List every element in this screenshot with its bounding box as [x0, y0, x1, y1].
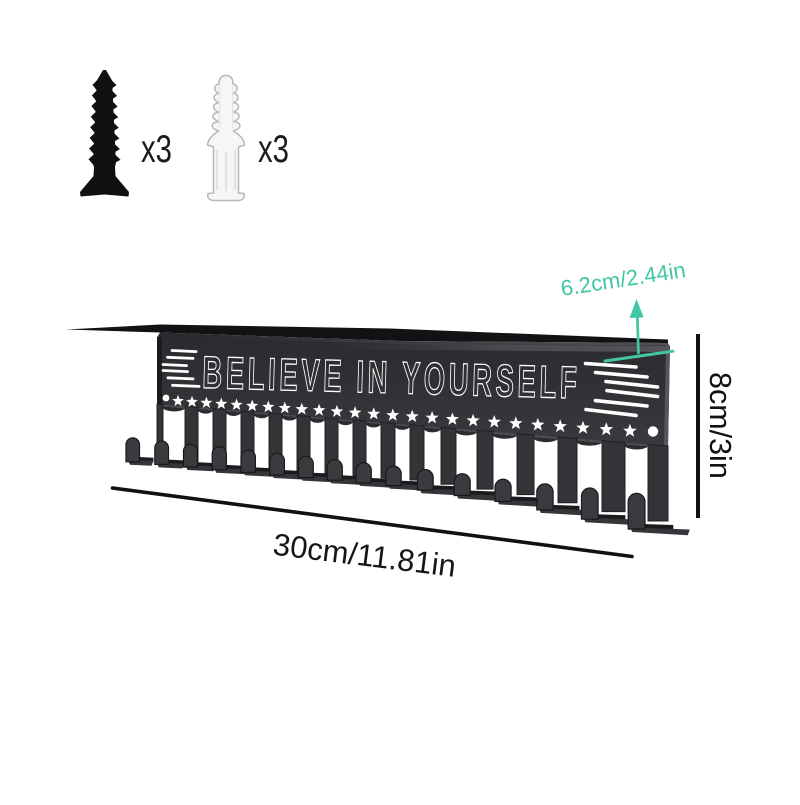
svg-text:BELIEVE IN YOURSELF: BELIEVE IN YOURSELF: [202, 347, 581, 409]
svg-text:x3: x3: [258, 128, 289, 171]
svg-text:8cm/3in: 8cm/3in: [703, 372, 737, 479]
svg-text:x3: x3: [141, 128, 172, 171]
